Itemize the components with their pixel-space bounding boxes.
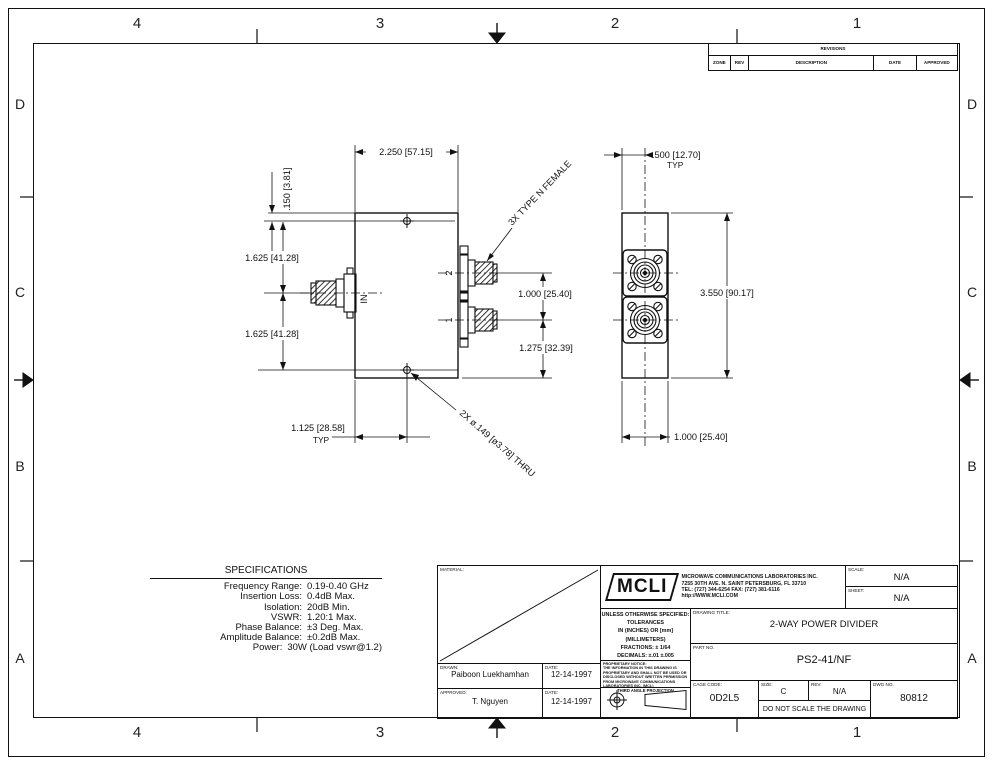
rev-col-zone: ZONE bbox=[709, 56, 731, 71]
part-number-label: PART NO. bbox=[691, 644, 957, 650]
tol-line2: TOLERANCES bbox=[601, 619, 690, 627]
cage-code-label: CAGE CODE: bbox=[691, 681, 758, 687]
company-line1: MICROWAVE COMMUNICATIONS LABORATORIES IN… bbox=[681, 574, 817, 580]
dim-hole-x-typ: TYP bbox=[313, 435, 330, 445]
rev-cell: REV: N/A bbox=[808, 680, 871, 701]
port-label-in: IN bbox=[359, 294, 369, 303]
rev-col-rev: REV bbox=[731, 56, 750, 71]
drawn-date: 12-14-1997 bbox=[543, 670, 600, 679]
front-view-outline bbox=[355, 213, 458, 378]
proprietary-body: THE INFORMATION IN THIS DRAWING IS PROPR… bbox=[603, 666, 688, 688]
no-scale-text: DO NOT SCALE THE DRAWING bbox=[763, 706, 866, 713]
rev-col-approved: APPROVED bbox=[917, 56, 957, 71]
dimension-text-masks bbox=[238, 144, 759, 354]
cage-code-cell: CAGE CODE: 0D2L5 bbox=[690, 680, 759, 719]
tolerances-cell: UNLESS OTHERWISE SPECIFIED: TOLERANCES I… bbox=[600, 608, 691, 661]
dim-port-spacing: 1.000 [25.40] bbox=[518, 289, 572, 299]
dim-in-upper: 1.625 [41.28] bbox=[245, 253, 299, 263]
size-value: C bbox=[759, 687, 808, 696]
side-dim-height: 3.550 [90.17] bbox=[700, 288, 754, 298]
approved-name: T. Nguyen bbox=[438, 697, 542, 706]
rev-col-date: DATE bbox=[874, 56, 916, 71]
drawn-date-cell: DATE: 12-14-1997 bbox=[542, 663, 601, 689]
drawing-title-value: 2-WAY POWER DIVIDER bbox=[691, 619, 957, 630]
spec-value: 30W (Load vswr@1.2) bbox=[287, 643, 382, 653]
side-dim-width: 1.000 [25.40] bbox=[674, 432, 728, 442]
rev-value: N/A bbox=[809, 687, 870, 696]
port-label-1: 1 bbox=[444, 317, 454, 322]
part-number-cell: PART NO. PS2-41/NF bbox=[690, 643, 958, 681]
tol-line3: IN (INCHES) OR [mm] (MILLIMETERS) bbox=[601, 627, 690, 643]
specifications-title: SPECIFICATIONS bbox=[150, 566, 382, 579]
drawing-title-label: DRAWING TITLE: bbox=[691, 609, 957, 615]
mcli-logo: MCLI bbox=[605, 573, 679, 601]
material-cell: MATERIAL: bbox=[437, 565, 601, 664]
tol-line5: DECIMALS: ±.01 ±.005 bbox=[601, 652, 690, 660]
tol-line1: UNLESS OTHERWISE SPECIFIED: bbox=[601, 611, 690, 619]
company-cell: MCLI MICROWAVE COMMUNICATIONS LABORATORI… bbox=[600, 565, 846, 609]
part-number-value: PS2-41/NF bbox=[691, 654, 957, 666]
drawing-sheet: 4 3 2 1 4 3 2 1 D C B A D C B A bbox=[0, 0, 993, 765]
dim-hole-x: 1.125 [28.58] bbox=[291, 423, 345, 433]
mcli-logo-text: MCLI bbox=[617, 576, 667, 598]
material-diagonal-line bbox=[438, 566, 600, 663]
dimension-texts: 2.250 [57.15] 1.625 [41.28] 1.625 [41.28… bbox=[245, 147, 754, 479]
spec-row-power: Power:30W (Load vswr@1.2) bbox=[150, 643, 382, 653]
projection-cell: THIRD ANGLE PROJECTION bbox=[600, 687, 691, 719]
mounting-holes bbox=[400, 214, 414, 377]
size-cell: SIZE: C bbox=[758, 680, 809, 701]
drawing-title-cell: DRAWING TITLE: 2-WAY POWER DIVIDER bbox=[690, 608, 958, 644]
dimension-arrowheads bbox=[269, 149, 730, 440]
sheet-cell: SHEET: N/A bbox=[845, 586, 958, 609]
spec-label: Power: bbox=[150, 643, 282, 653]
dim-in-lower: 1.625 [41.28] bbox=[245, 329, 299, 339]
approved-date: 12-14-1997 bbox=[543, 697, 600, 706]
no-scale-cell: DO NOT SCALE THE DRAWING bbox=[758, 700, 871, 719]
tol-line4: FRACTIONS: ± 1/64 bbox=[601, 644, 690, 652]
dwg-number-cell: DWG NO. 80812 bbox=[870, 680, 958, 719]
date-label: DATE: bbox=[543, 689, 600, 695]
dim-hole-offset: .150 [3.81] bbox=[282, 168, 292, 211]
revisions-table: REVISIONS ZONE REV DESCRIPTION DATE APPR… bbox=[708, 43, 958, 71]
drawn-name: Paiboon Luekhamhan bbox=[438, 670, 542, 679]
connector-note: 3X TYPE N FEMALE bbox=[506, 158, 573, 227]
dwg-number-label: DWG NO. bbox=[871, 681, 957, 687]
port-label-2: 2 bbox=[444, 270, 454, 275]
specifications-block: SPECIFICATIONS Frequency Range:0.19-0.40… bbox=[150, 566, 382, 654]
dim-body-width: 2.250 [57.15] bbox=[379, 147, 433, 157]
hole-note: 2X ø.149 [ø3.78] THRU bbox=[458, 408, 537, 479]
rev-col-description: DESCRIPTION bbox=[749, 56, 874, 71]
dim-port-edge: 1.275 [32.39] bbox=[519, 343, 573, 353]
sheet-value: N/A bbox=[846, 593, 957, 604]
company-line4: http://WWW.MCLI.COM bbox=[681, 593, 817, 599]
dwg-number-value: 80812 bbox=[871, 693, 957, 704]
side-dim-offset: .500 [12.70] bbox=[652, 150, 701, 160]
approved-cell: APPROVED: T. Nguyen bbox=[437, 688, 543, 719]
approved-date-cell: DATE: 12-14-1997 bbox=[542, 688, 601, 719]
approved-label: APPROVED: bbox=[438, 689, 542, 695]
revisions-title: REVISIONS bbox=[709, 43, 957, 56]
proprietary-notice-cell: PROPRIETARY NOTICE: THE INFORMATION IN T… bbox=[600, 660, 691, 688]
side-dim-offset-typ: TYP bbox=[667, 160, 684, 170]
scale-cell: SCALE: N/A bbox=[845, 565, 958, 587]
company-address: MICROWAVE COMMUNICATIONS LABORATORIES IN… bbox=[681, 574, 817, 600]
drawn-cell: DRAWN: Paiboon Luekhamhan bbox=[437, 663, 543, 689]
scale-value: N/A bbox=[846, 572, 957, 583]
cage-code-value: 0D2L5 bbox=[691, 693, 758, 704]
third-angle-projection-icon bbox=[601, 688, 690, 712]
